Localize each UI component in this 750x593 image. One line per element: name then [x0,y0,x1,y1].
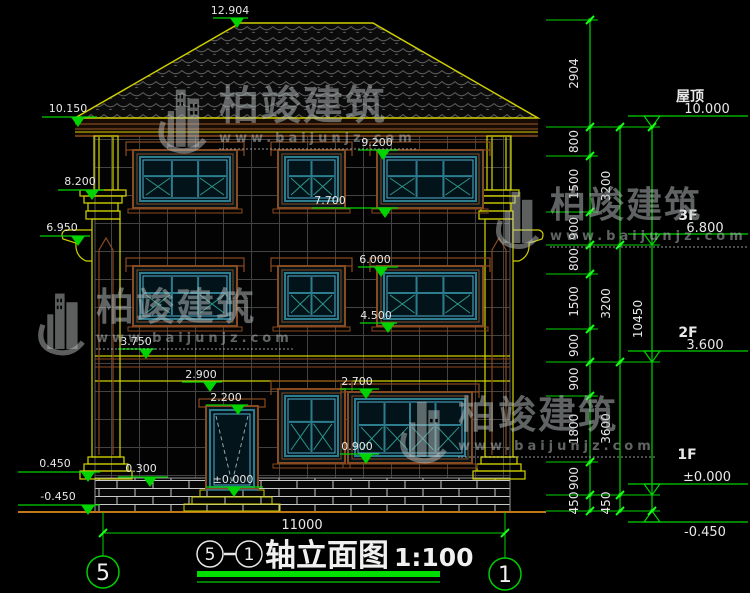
hip-roof [75,23,538,118]
dim-node [589,361,592,364]
dim-value: 800 [567,130,581,153]
title-scale: 1:100 [394,543,474,572]
elevation-drawing: 12.9049.2007.7006.0004.5003.7502.9002.70… [0,0,750,593]
level-label: 3.750 [120,335,152,348]
dim-node [651,126,654,129]
dim-value: 900 [567,217,581,240]
floor-elevation: 10.000 [684,102,730,117]
window [377,150,483,208]
title-axis-end: 1 [244,545,255,565]
level-label: 9.200 [361,136,393,149]
dim-node [589,395,592,398]
dim-node [619,244,622,247]
level-label: 0.300 [125,462,157,475]
dim-value: 2904 [567,58,581,89]
dim-value: 900 [567,467,581,490]
floor-level-triangle [644,116,660,127]
level-label: 0.450 [39,457,71,470]
level-label: 0.900 [341,440,373,453]
stone-base [95,478,510,512]
drawing-title: 5 1 轴立面图 1:100 [197,538,474,582]
level-label: ±0.000 [213,473,254,486]
level-label: 4.500 [360,309,392,322]
dim-node [589,211,592,214]
dim-node [589,244,592,247]
dim-value: 3200 [599,288,613,319]
dim-node [589,510,592,513]
dim-value: 450 [567,492,581,515]
right-corbel [513,230,543,261]
dim-node [619,510,622,513]
dim-node [589,126,592,129]
dim-node [589,494,592,497]
dim-node [589,19,592,22]
level-label: 6.000 [359,253,391,266]
dim-node [589,461,592,464]
cad-elevation-sheet: 12.9049.2007.7006.0004.5003.7502.9002.70… [0,0,750,593]
level-label: 2.700 [341,375,373,388]
floor-name: 1F [677,447,696,463]
window [377,266,483,326]
dim-value: 1800 [567,414,581,445]
dim-node [619,126,622,129]
dim-node [651,510,654,513]
window [133,150,237,208]
window [133,266,237,326]
level-label: 10.150 [49,102,88,115]
floor-elevation: 3.600 [686,338,723,353]
dim-value: 3600 [599,413,613,444]
floor-elevation: ±0.000 [683,470,731,485]
floor-elevation: 6.800 [686,221,723,236]
dim-node [589,273,592,276]
level-label: 2.200 [210,391,242,404]
dim-node [619,494,622,497]
dim-value: 10450 [631,300,645,338]
dim-node [589,155,592,158]
level-label: 12.904 [211,4,250,17]
level-triangle [81,505,95,515]
dim-value: 3200 [599,171,613,202]
level-label: -0.450 [40,490,75,503]
title-text: 轴立面图 [265,538,389,574]
level-label: 8.200 [64,175,96,188]
dim-value: 1500 [567,169,581,200]
dim-value: 1500 [567,286,581,317]
dim-value: 900 [567,368,581,391]
dim-node [589,328,592,331]
floor-elevation: -0.450 [684,525,726,540]
axis-number-left: 5 [96,561,110,586]
cornice-band [75,118,538,136]
title-axis-start: 5 [205,545,216,565]
level-label: 2.900 [185,368,217,381]
left-corbel [62,230,92,261]
dim-value: 900 [567,334,581,357]
level-triangle [81,472,95,482]
dim-node [619,361,622,364]
level-triangle [71,236,85,246]
level-label: 7.700 [314,194,346,207]
level-label: 6.950 [46,221,78,234]
dim-value: 450 [599,492,613,515]
title-underline [197,571,440,577]
dim-value: 800 [567,248,581,271]
axis-number-right: 1 [498,563,512,588]
overall-dim-text: 11000 [281,518,322,533]
floor-level-triangle [644,511,660,522]
